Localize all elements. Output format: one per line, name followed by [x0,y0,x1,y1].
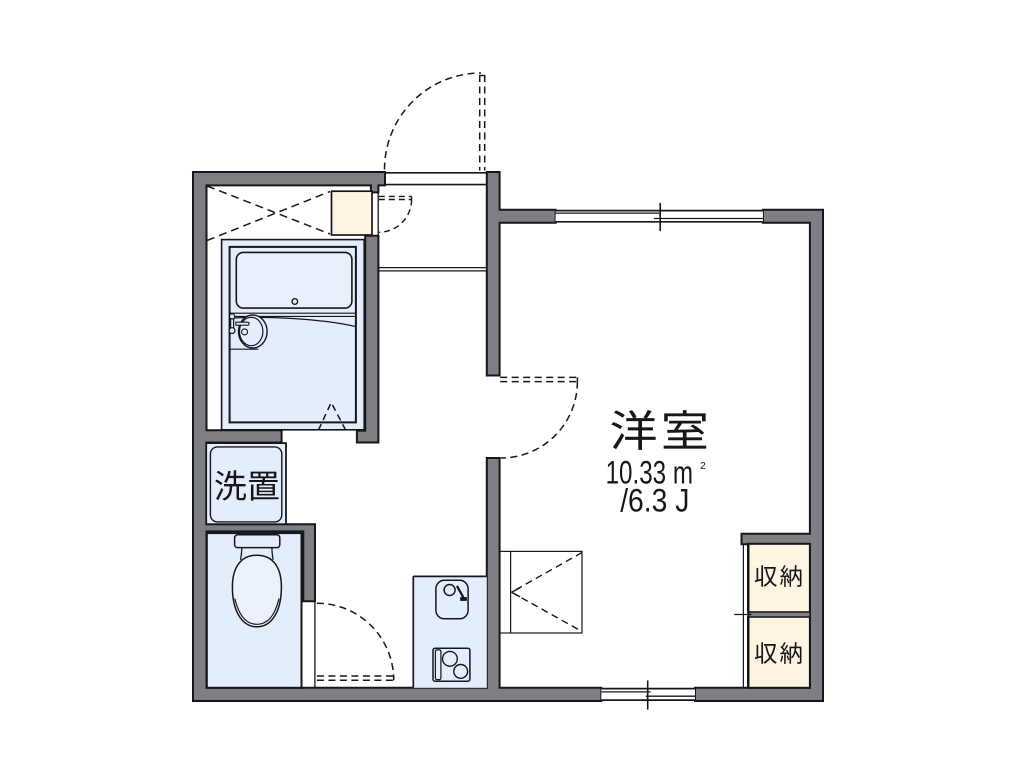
svg-text:/6.3 J: /6.3 J [620,483,689,519]
svg-text:2: 2 [700,460,706,472]
